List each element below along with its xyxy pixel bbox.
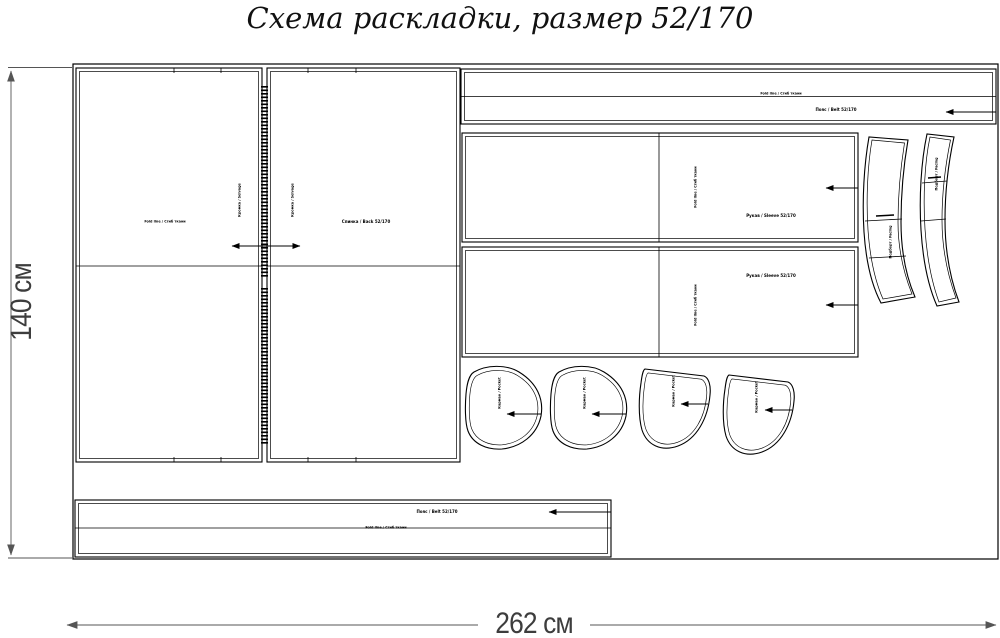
piece-sleeve-bottom <box>462 247 858 357</box>
piece-back-left-panel <box>76 68 262 462</box>
label-belt-top: Пояс / Belt 52/170 <box>815 108 856 112</box>
label-belt-bottom-fold: Fold line / Сгиб ткани <box>365 526 406 529</box>
label-back-piece: Спинка / Back 52/170 <box>342 220 390 224</box>
label-belt-fold-line: Fold line / Сгиб ткани <box>760 92 801 95</box>
layout-diagram: Схема раскладки, размер 52/170 <box>0 0 1000 638</box>
cutting-layout-canvas <box>0 0 1000 638</box>
label-pocket-1: Карман / Pocket <box>498 377 501 408</box>
piece-front-right-panel <box>267 68 460 462</box>
piece-sleeve-top <box>462 133 858 242</box>
label-facing-left: Подборт / Facing <box>889 225 892 258</box>
label-sleeve2: Рукав / Sleeve 52/170 <box>746 274 796 278</box>
label-sleeve1-fold: Fold line / Сгиб ткани <box>694 166 697 207</box>
label-selvage-left: Кромка / Selvage <box>238 183 241 217</box>
fabric-width-label: 262 см <box>495 607 572 638</box>
label-pocket-2: Карман / Pocket <box>583 377 586 408</box>
label-sleeve1: Рукав / Sleeve 52/170 <box>746 214 796 218</box>
fabric-height-label: 140 см <box>5 263 39 340</box>
label-selvage-right: Кромка / Selvage <box>291 183 294 217</box>
piece-belt-top-strip <box>461 69 996 124</box>
label-belt-bottom: Пояс / Belt 52/170 <box>416 510 457 514</box>
label-pocket-4: Карман / Pocket <box>755 381 758 412</box>
label-back-fold-line: Fold line / Сгиб ткани <box>144 220 185 223</box>
label-pocket-3: Карман / Pocket <box>672 375 675 406</box>
label-sleeve2-fold: Fold line / Сгиб ткани <box>694 284 697 325</box>
piece-belt-bottom-strip <box>75 500 611 557</box>
label-facing-right: Подборт / Facing <box>935 157 938 190</box>
